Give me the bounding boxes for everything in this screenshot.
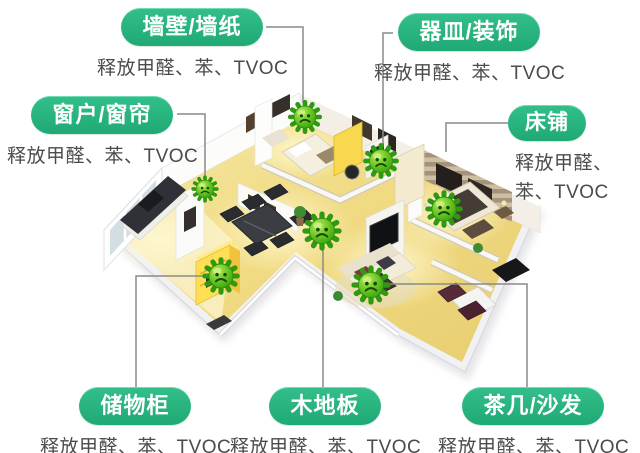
label-pill: 储物柜 [79,387,190,425]
callout-bedding: 床铺 释放甲醛、 苯、TVOC [508,105,638,207]
callout-storage-cabinet: 储物柜 释放甲醛、苯、TVOC [40,387,230,453]
emission-text: 释放甲醛、 苯、TVOC [515,149,638,207]
emission-text: 释放甲醛、苯、TVOC [230,432,420,453]
emission-text-line2: 苯、TVOC [515,178,638,207]
label-pill: 窗户/窗帘 [31,96,172,134]
label-pill: 茶几/沙发 [462,387,603,425]
label-pill: 墙壁/墙纸 [121,8,262,46]
emission-text-line1: 释放甲醛、 [515,149,638,178]
emission-text: 释放甲醛、苯、TVOC [374,58,564,85]
label-pill: 器皿/装饰 [398,13,539,51]
callout-coffee-table-sofa: 茶几/沙发 释放甲醛、苯、TVOC [438,387,628,453]
emission-text: 释放甲醛、苯、TVOC [40,432,230,453]
emission-text: 释放甲醛、苯、TVOC [7,141,197,168]
infographic-canvas: 墙壁/墙纸 释放甲醛、苯、TVOC 器皿/装饰 释放甲醛、苯、TVOC 窗户/窗… [0,0,640,453]
callout-window-curtain: 窗户/窗帘 释放甲醛、苯、TVOC [7,96,197,168]
callout-wall-wallpaper: 墙壁/墙纸 释放甲醛、苯、TVOC [97,8,287,80]
callout-dishware-decor: 器皿/装饰 释放甲醛、苯、TVOC [374,13,564,85]
emission-text: 释放甲醛、苯、TVOC [97,53,287,80]
label-pill: 床铺 [508,105,586,141]
label-pill: 木地板 [269,387,380,425]
emission-text: 释放甲醛、苯、TVOC [438,432,628,453]
callout-wood-floor: 木地板 释放甲醛、苯、TVOC [230,387,420,453]
